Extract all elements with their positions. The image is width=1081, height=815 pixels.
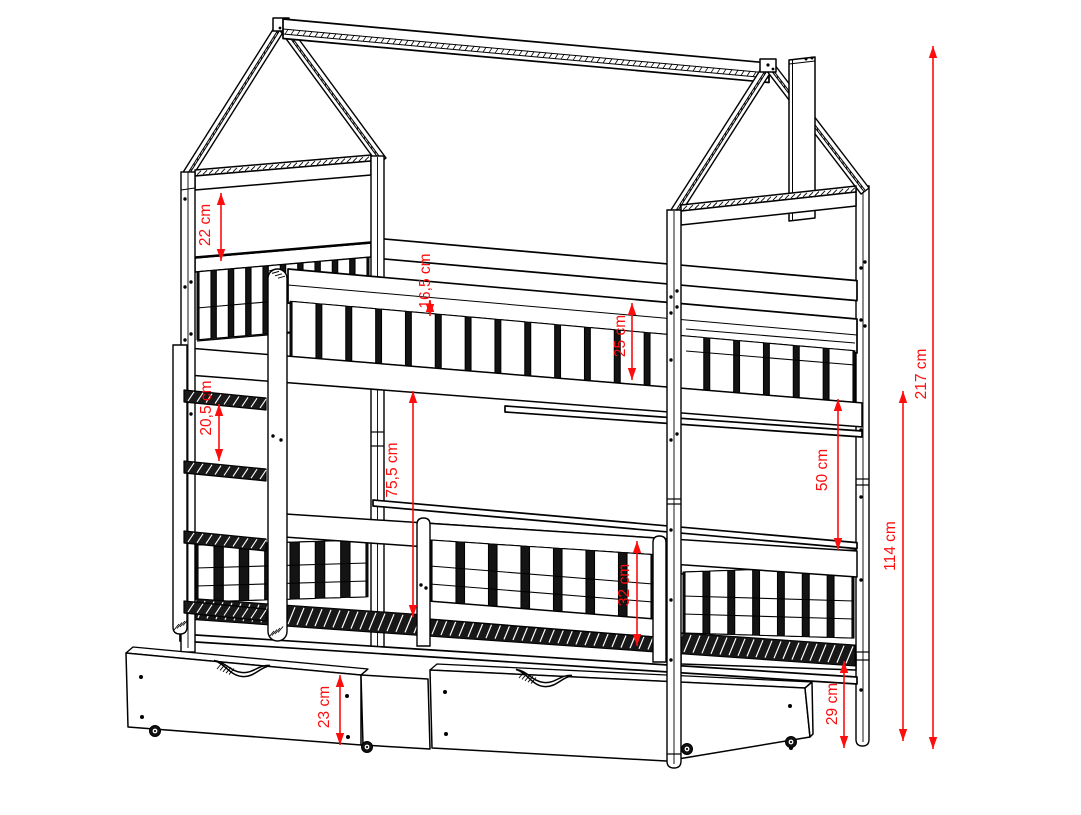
svg-text:20,5 cm: 20,5 cm [198, 380, 215, 435]
svg-text:50 cm: 50 cm [814, 449, 831, 491]
svg-text:16,5 cm: 16,5 cm [417, 253, 434, 308]
svg-text:217 cm: 217 cm [913, 349, 930, 400]
svg-text:29 cm: 29 cm [824, 683, 841, 725]
svg-text:25 cm: 25 cm [612, 315, 629, 357]
svg-text:22 cm: 22 cm [197, 204, 214, 246]
svg-text:32 cm: 32 cm [616, 564, 633, 606]
svg-text:114 cm: 114 cm [882, 521, 899, 571]
svg-text:75,5 cm: 75,5 cm [384, 442, 401, 497]
svg-text:23 cm: 23 cm [316, 686, 333, 728]
